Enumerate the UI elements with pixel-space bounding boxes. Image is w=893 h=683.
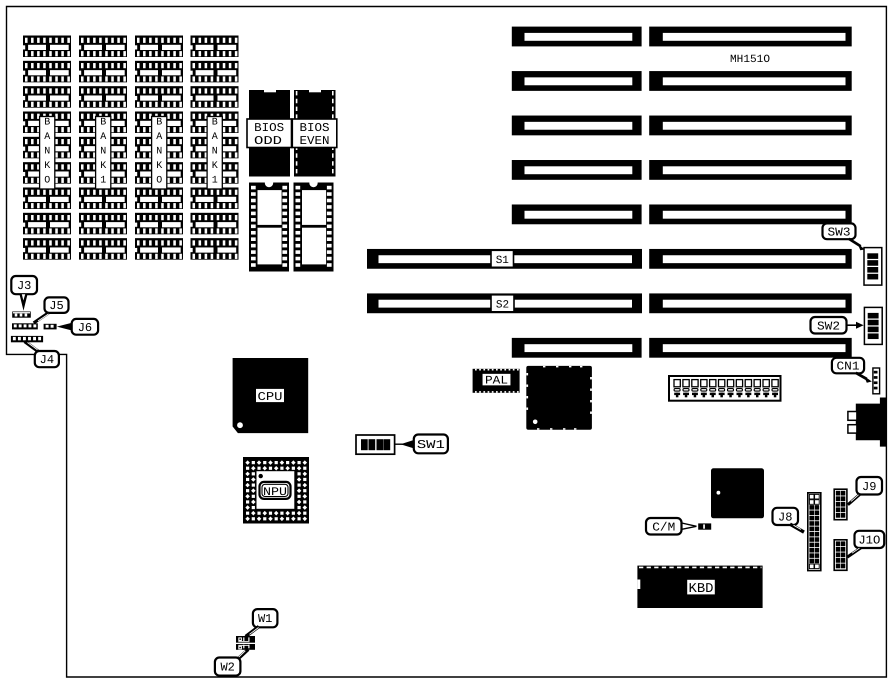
svg-text:A: A — [100, 132, 106, 143]
svg-text:B: B — [212, 118, 218, 129]
svg-text:KBD: KBD — [689, 582, 714, 597]
svg-text:SW1: SW1 — [417, 438, 445, 452]
svg-text:J5: J5 — [49, 299, 63, 313]
svg-text:NPU: NPU — [263, 486, 287, 499]
svg-text:J1O: J1O — [858, 533, 880, 547]
svg-text:K: K — [100, 161, 106, 172]
svg-text:A: A — [44, 132, 50, 143]
svg-text:C/M: C/M — [652, 520, 675, 534]
svg-text:J3: J3 — [17, 279, 31, 293]
svg-text:S1: S1 — [496, 255, 510, 267]
svg-text:SW3: SW3 — [828, 225, 851, 239]
svg-text:N: N — [100, 147, 106, 158]
svg-text:BIOS: BIOS — [300, 121, 330, 135]
svg-text:B: B — [100, 118, 106, 129]
svg-text:A: A — [156, 132, 162, 143]
svg-text:CN1: CN1 — [837, 360, 860, 374]
svg-text:J8: J8 — [778, 510, 792, 524]
svg-text:MH151O: MH151O — [730, 54, 770, 66]
svg-text:1: 1 — [212, 176, 218, 187]
svg-text:W1: W1 — [258, 612, 272, 626]
svg-text:N: N — [44, 147, 50, 158]
svg-text:N: N — [156, 147, 162, 158]
svg-text:1: 1 — [100, 176, 106, 187]
svg-text:CPU: CPU — [258, 390, 283, 404]
svg-text:O: O — [156, 176, 162, 187]
svg-text:J6: J6 — [78, 321, 92, 335]
svg-text:B: B — [44, 118, 50, 129]
svg-text:S2: S2 — [496, 300, 509, 312]
svg-text:N: N — [212, 147, 218, 158]
svg-text:EVEN: EVEN — [300, 134, 330, 148]
svg-text:BIOS: BIOS — [254, 121, 284, 135]
svg-text:K: K — [44, 161, 50, 172]
svg-text:K: K — [156, 161, 162, 172]
svg-text:K: K — [212, 161, 218, 172]
svg-text:O: O — [44, 176, 50, 187]
svg-text:SW2: SW2 — [817, 319, 840, 333]
svg-text:J4: J4 — [40, 353, 54, 367]
svg-text:B: B — [156, 118, 162, 129]
svg-text:W2: W2 — [220, 661, 234, 675]
svg-text:A: A — [212, 132, 218, 143]
svg-text:J9: J9 — [862, 480, 876, 494]
svg-text:PAL: PAL — [485, 375, 508, 388]
svg-text:ODD: ODD — [254, 134, 282, 148]
